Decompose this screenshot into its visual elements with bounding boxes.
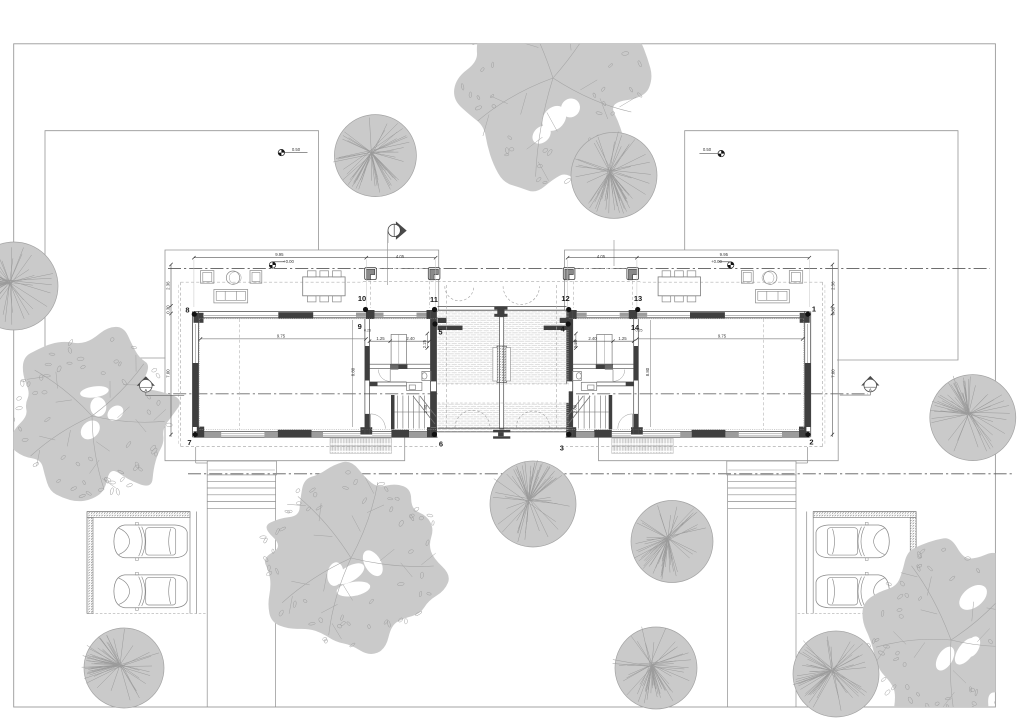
svg-text:2.80: 2.80 (572, 404, 577, 413)
svg-text:2.36: 2.36 (831, 281, 836, 290)
svg-text:0.50: 0.50 (292, 147, 301, 152)
svg-text:2.25: 2.25 (573, 339, 578, 348)
svg-text:+0.00: +0.00 (711, 259, 722, 264)
svg-text:10: 10 (358, 294, 366, 303)
svg-text:2: 2 (809, 438, 813, 447)
svg-text:9.95: 9.95 (720, 252, 729, 257)
svg-text:12: 12 (561, 294, 569, 303)
svg-text:A: A (144, 387, 147, 392)
svg-text:4.05: 4.05 (597, 254, 606, 259)
svg-text:A: A (869, 387, 872, 392)
svg-text:7.00: 7.00 (831, 369, 836, 378)
svg-text:1.25: 1.25 (618, 336, 627, 341)
svg-text:9.75: 9.75 (718, 334, 727, 339)
svg-text:13: 13 (634, 294, 642, 303)
svg-text:1: 1 (812, 305, 816, 314)
svg-text:8: 8 (185, 306, 189, 315)
svg-text:0.25: 0.25 (364, 329, 371, 333)
svg-text:9: 9 (358, 322, 362, 331)
svg-text:2.36: 2.36 (165, 281, 170, 290)
svg-text:5: 5 (438, 328, 442, 337)
svg-text:4.05: 4.05 (396, 254, 405, 259)
svg-text:8.80: 8.80 (350, 367, 355, 376)
svg-text:0.50: 0.50 (703, 147, 712, 152)
svg-text:11: 11 (430, 295, 438, 304)
svg-text:2.80: 2.80 (423, 404, 428, 413)
svg-text:+0.00: +0.00 (283, 259, 294, 264)
svg-text:1.25: 1.25 (376, 336, 385, 341)
svg-text:0.25: 0.25 (636, 329, 643, 333)
svg-text:2.25: 2.25 (422, 339, 427, 348)
svg-text:9.75: 9.75 (277, 334, 286, 339)
svg-text:2.40: 2.40 (406, 336, 415, 341)
svg-text:6: 6 (439, 440, 443, 449)
svg-text:9.95: 9.95 (275, 252, 284, 257)
svg-text:8.80: 8.80 (645, 367, 650, 376)
svg-text:7.00: 7.00 (165, 369, 170, 378)
svg-text:7: 7 (187, 438, 191, 447)
svg-text:0.30: 0.30 (165, 305, 170, 314)
svg-text:2.40: 2.40 (588, 336, 597, 341)
svg-text:0.30: 0.30 (831, 306, 836, 315)
svg-text:3: 3 (560, 444, 564, 453)
